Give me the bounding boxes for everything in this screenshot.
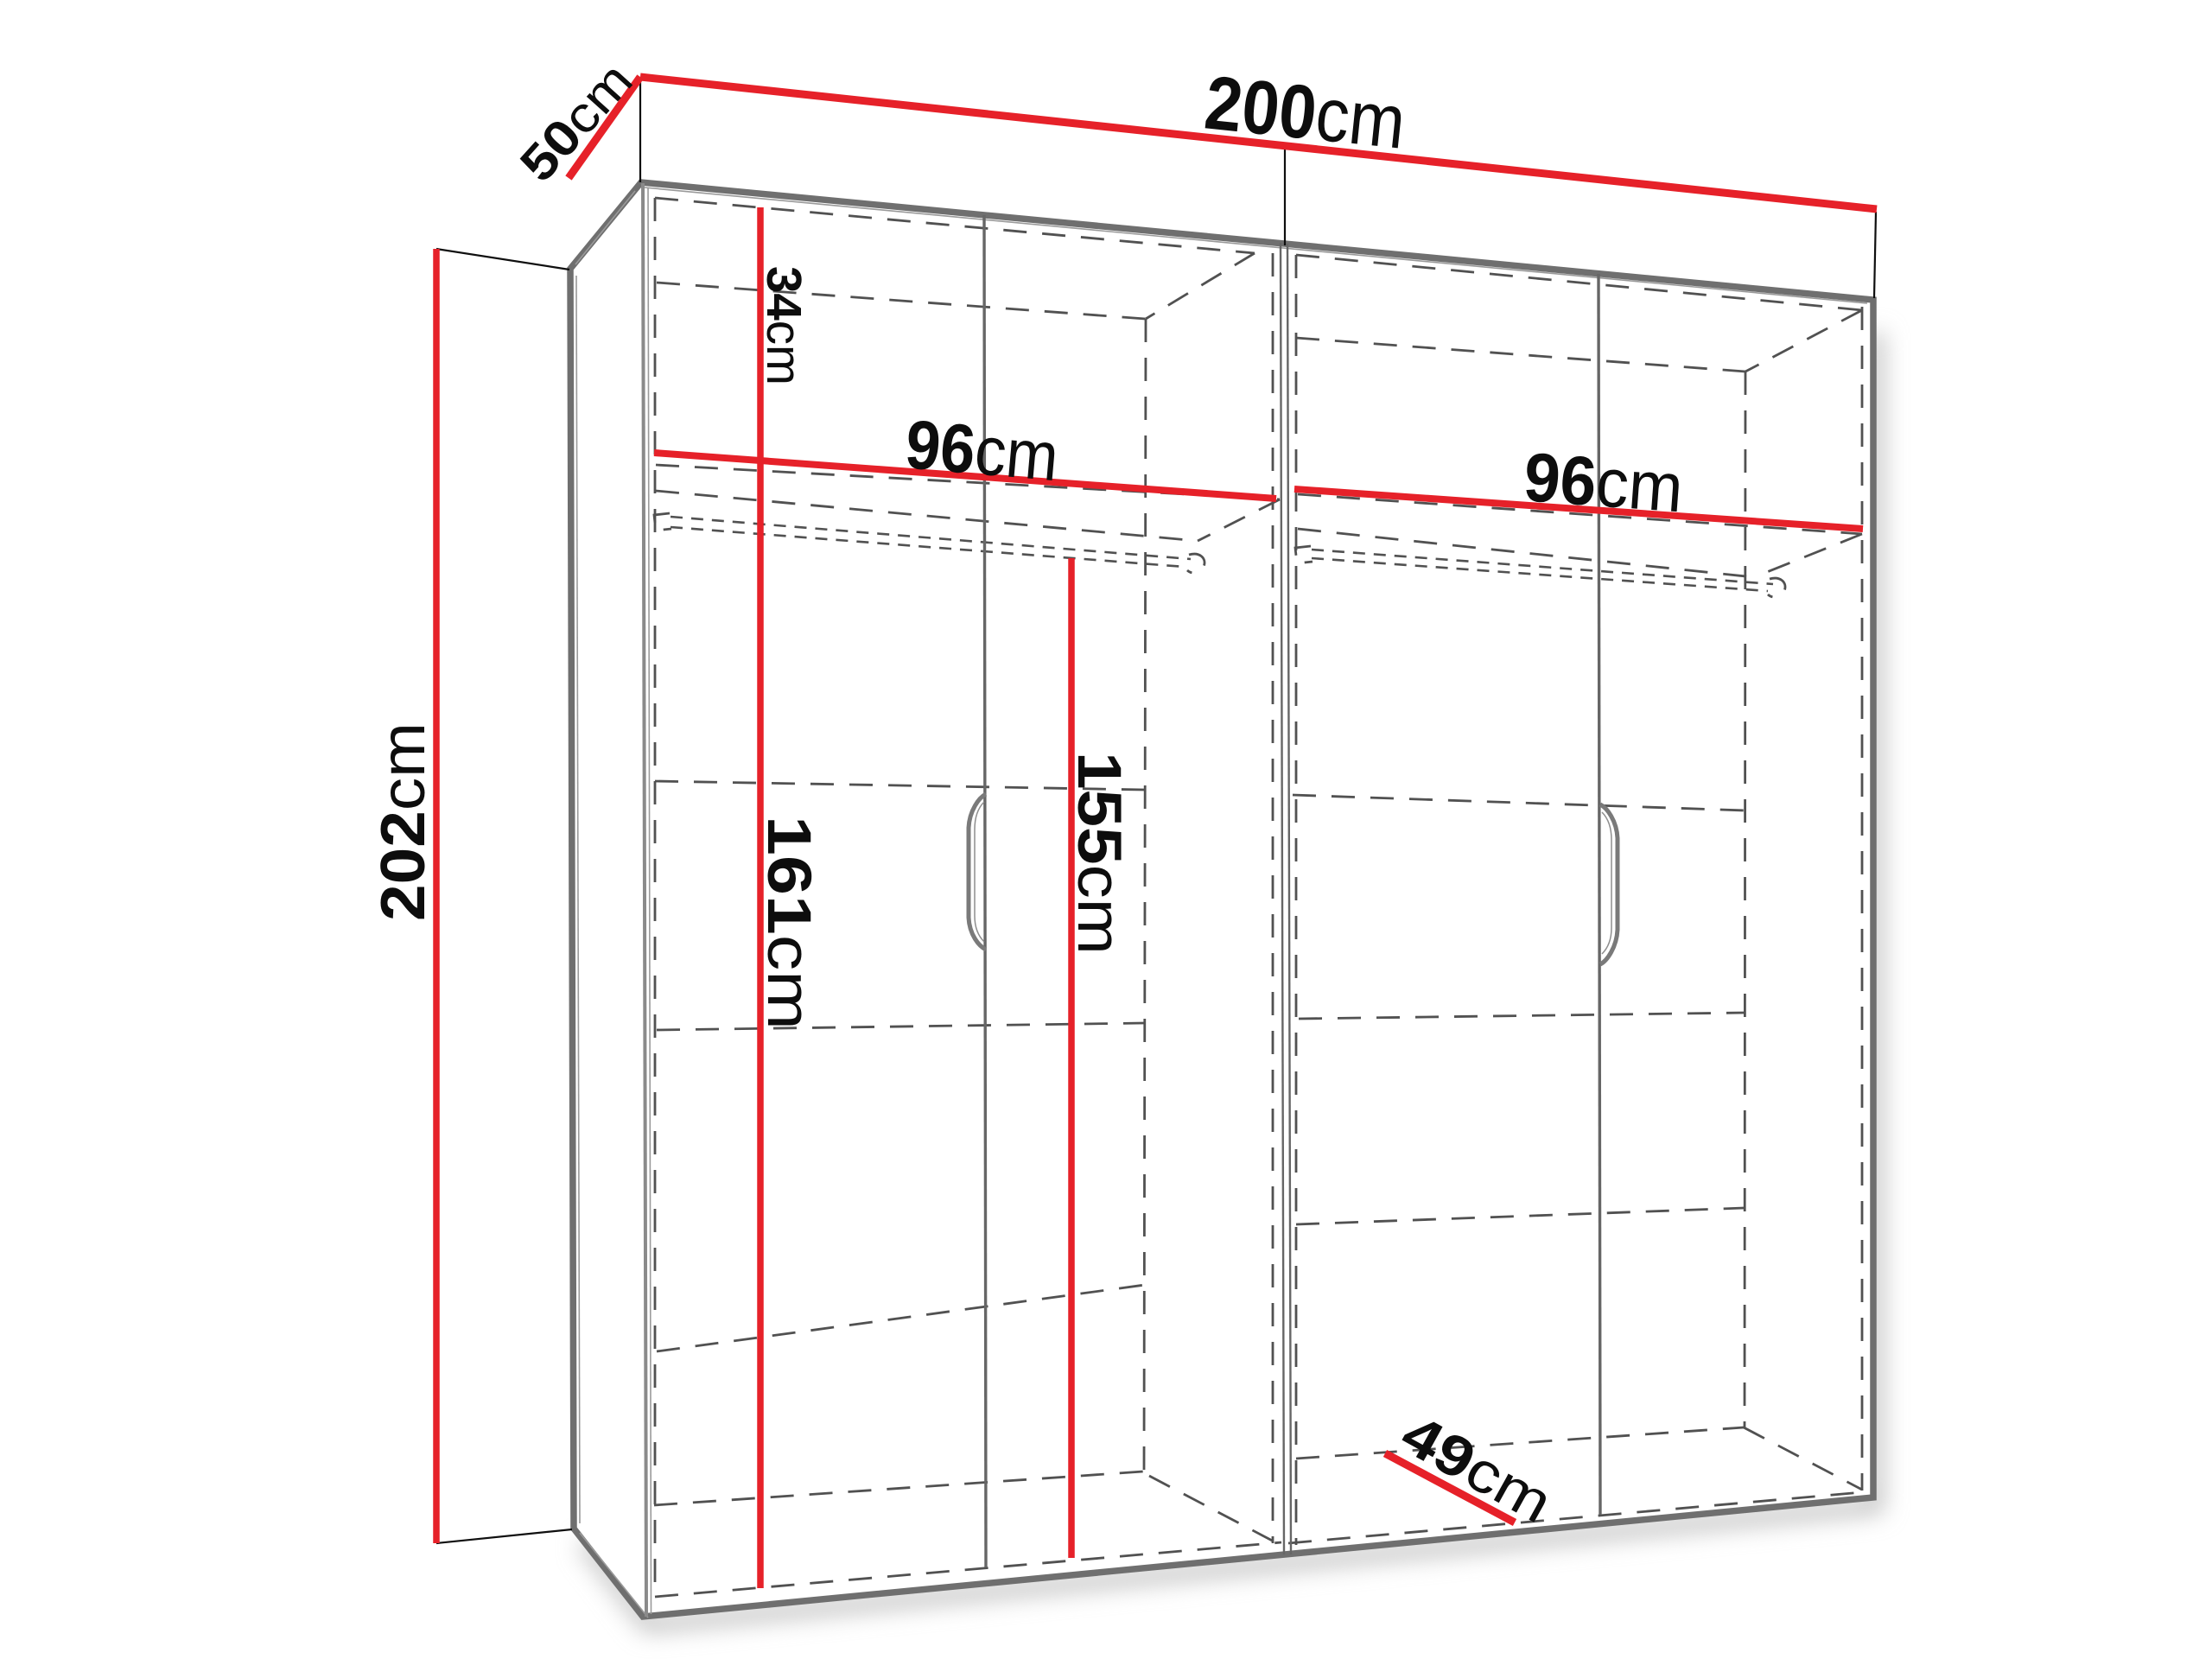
svg-text:202cm: 202cm [369, 722, 438, 921]
svg-text:161cm: 161cm [754, 816, 823, 1030]
svg-text:96cm: 96cm [1522, 438, 1686, 526]
svg-text:155cm: 155cm [1065, 752, 1133, 955]
svg-text:96cm: 96cm [903, 405, 1062, 495]
svg-text:34cm: 34cm [756, 266, 811, 385]
